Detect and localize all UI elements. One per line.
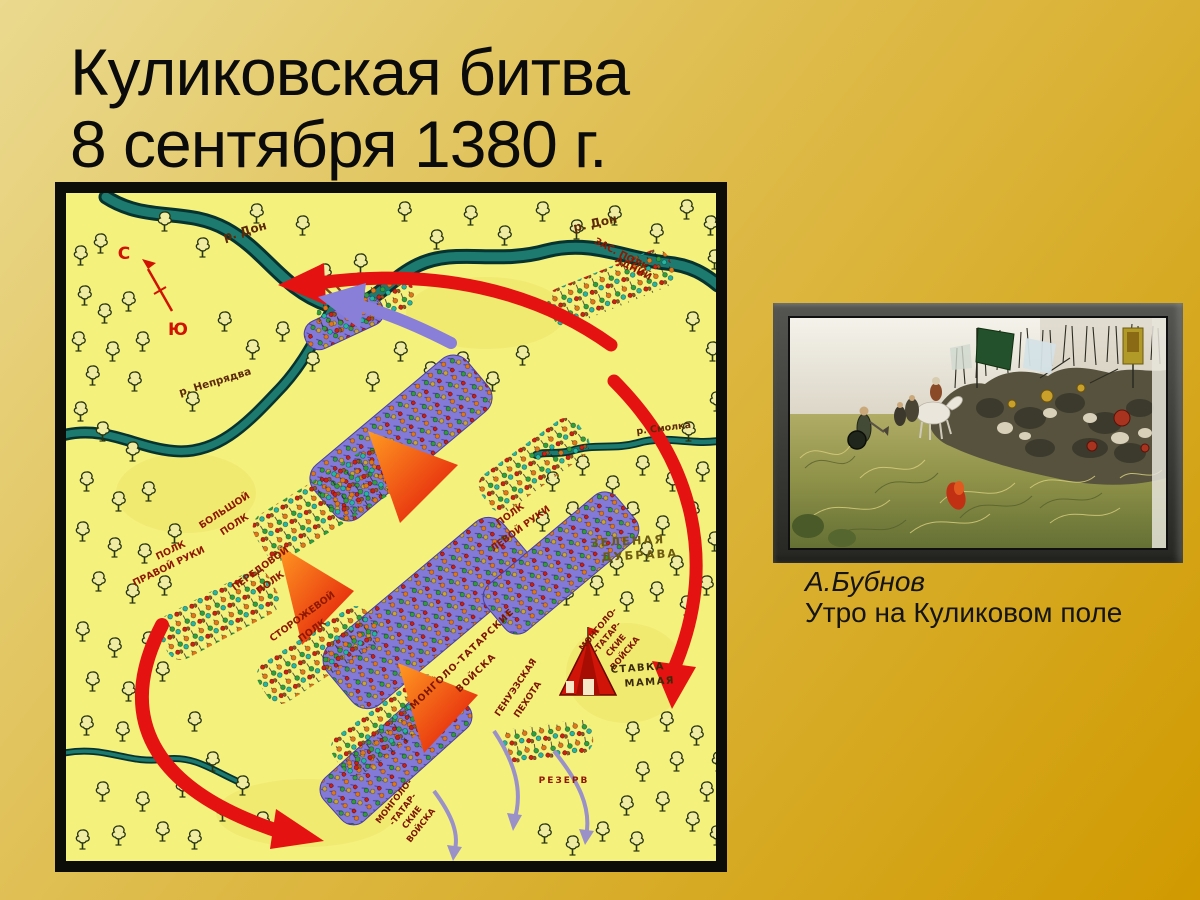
title-line-1: Куликовская битва [70, 35, 629, 109]
slide-title: Куликовская битва8 сентября 1380 г. [70, 36, 629, 180]
title-line-2: 8 сентября 1380 г. [70, 107, 607, 181]
painting-image [790, 318, 1166, 548]
river-don-label-2: р. Дон [572, 212, 618, 235]
caption-title: Утро на Куликовом поле [805, 597, 1122, 628]
caption-author: А.Бубнов [805, 566, 1122, 597]
compass-south-label: Ю [168, 320, 188, 340]
compass-arrow [142, 259, 172, 311]
painting-figure [773, 303, 1183, 563]
battle-map-figure: С Ю р. Дон р. Дон р. Непрядва р. Смолка … [55, 182, 727, 872]
river-nepryadva-label: р. Непрядва [178, 365, 253, 398]
green-grove-label-2: ДУБРАВА [601, 546, 679, 564]
battle-map-image: С Ю р. Дон р. Дон р. Непрядва р. Смолка … [66, 193, 716, 861]
painting-caption: А.Бубнов Утро на Куликовом поле [805, 566, 1122, 628]
reserve-label: РЕЗЕРВ [539, 776, 590, 786]
slide-background: { "slide": { "title_lines": ["Куликовска… [0, 0, 1200, 900]
compass-north-label: С [118, 244, 130, 264]
